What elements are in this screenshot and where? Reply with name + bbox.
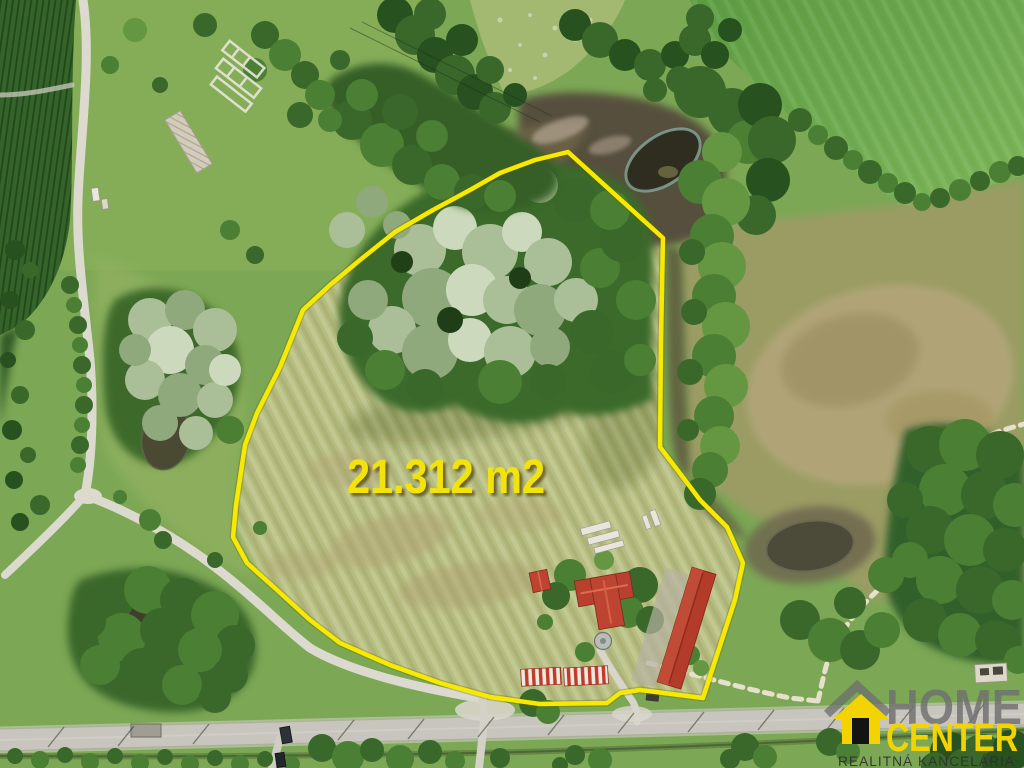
red-shed bbox=[529, 569, 551, 592]
striped-buildings bbox=[521, 665, 609, 689]
door bbox=[852, 718, 869, 744]
area-label: 21.312 m2 bbox=[347, 451, 545, 504]
logo-tagline: REALITNÁ KANCELÁRIA bbox=[838, 754, 1015, 768]
dark-car bbox=[275, 752, 286, 767]
white-shed bbox=[975, 663, 1008, 683]
aerial-photo: 21.312 m2 HOME CENTER REALITNÁ KANCELÁRI… bbox=[0, 0, 1024, 768]
aerial-photo-listing: 21.312 m2 HOME CENTER REALITNÁ KANCELÁRI… bbox=[0, 0, 1024, 768]
roadside-platform bbox=[131, 724, 161, 737]
